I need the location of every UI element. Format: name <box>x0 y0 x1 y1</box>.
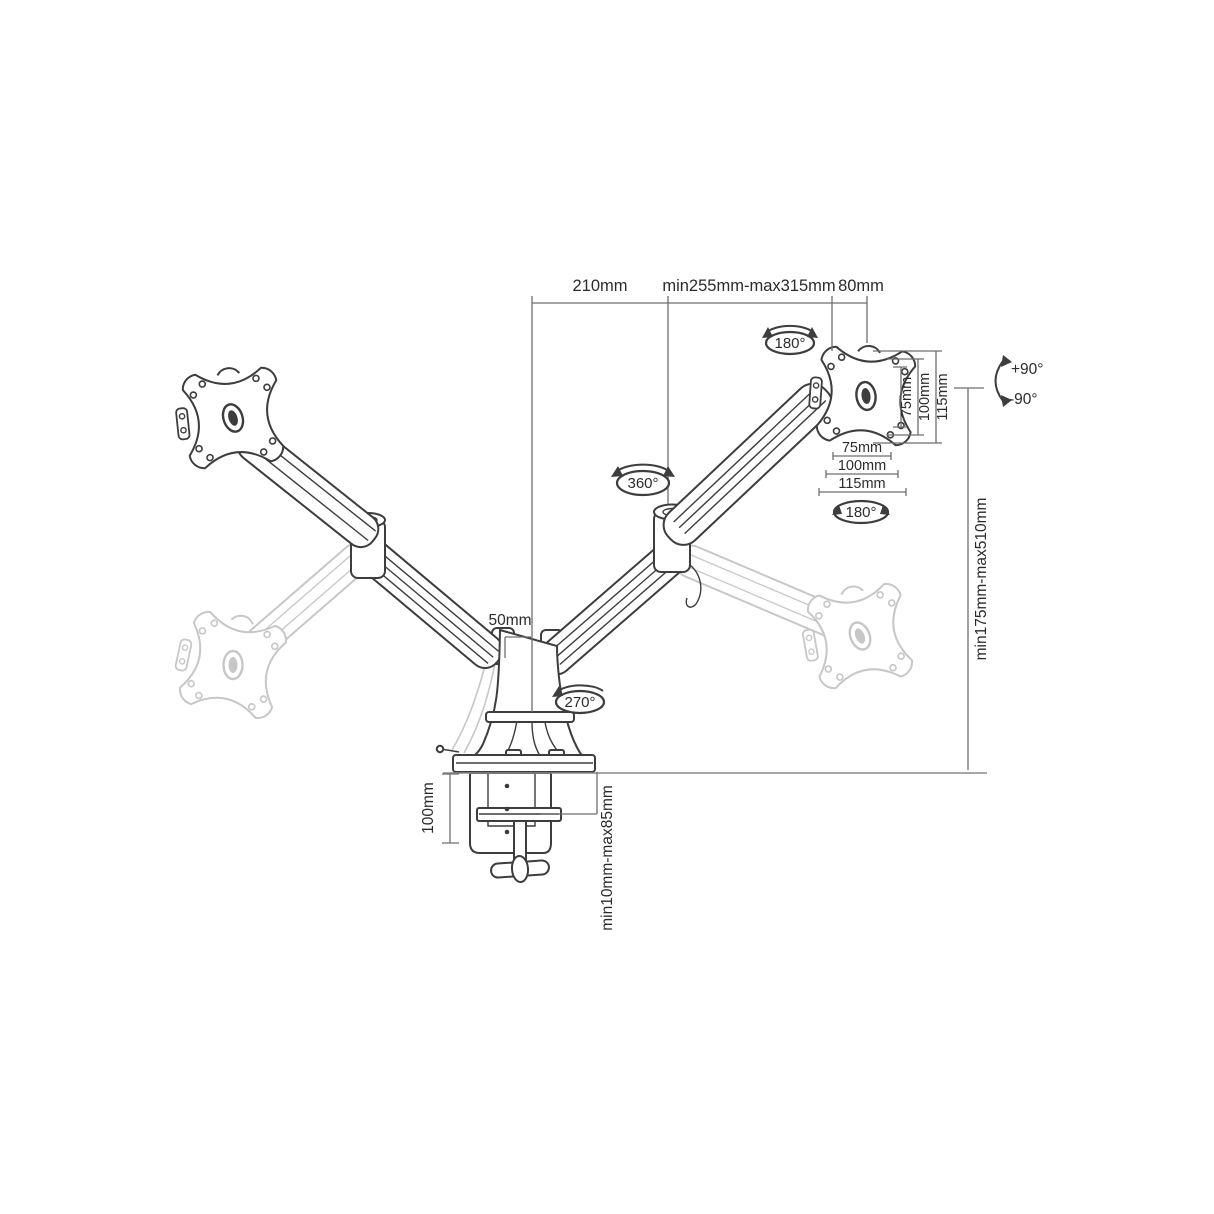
height-range-label: min175mm-max510mm <box>973 498 990 661</box>
vesa-side-115-label: 115mm <box>935 373 951 420</box>
desk-clamp <box>470 773 561 884</box>
vesa-bottom-75-label: 75mm <box>842 440 882 456</box>
vesa-side-75-label: 75mm <box>899 377 915 417</box>
dim-50-label: 50mm <box>488 612 531 629</box>
rot-180-side-label: 180° <box>845 504 876 521</box>
clamp-range-label: min10mm-max85mm <box>599 785 616 931</box>
monitor-arm-diagram: 210mm min255mm-max315mm 80mm min175mm-ma… <box>0 0 1214 1214</box>
dim-255-315-label: min255mm-max315mm <box>662 277 835 295</box>
rot-270-label: 270° <box>564 694 595 711</box>
dim-80-label: 80mm <box>838 277 884 295</box>
clamp-100-label: 100mm <box>420 782 437 834</box>
vesa-bottom-115-label: 115mm <box>838 476 885 492</box>
vesa-bottom-100-label: 100mm <box>838 458 886 474</box>
rot-360-label: 360° <box>627 475 658 492</box>
vesa-side-100-label: 100mm <box>917 373 933 421</box>
left-vesa-plate <box>172 363 285 470</box>
tilt-plus-label: +90° <box>1011 361 1044 378</box>
diagram-page: 210mm min255mm-max315mm 80mm min175mm-ma… <box>0 0 1214 1214</box>
dim-210-label: 210mm <box>572 277 627 295</box>
rot-180-top-label: 180° <box>774 335 805 352</box>
tilt-minus-label: -90° <box>1009 391 1038 408</box>
